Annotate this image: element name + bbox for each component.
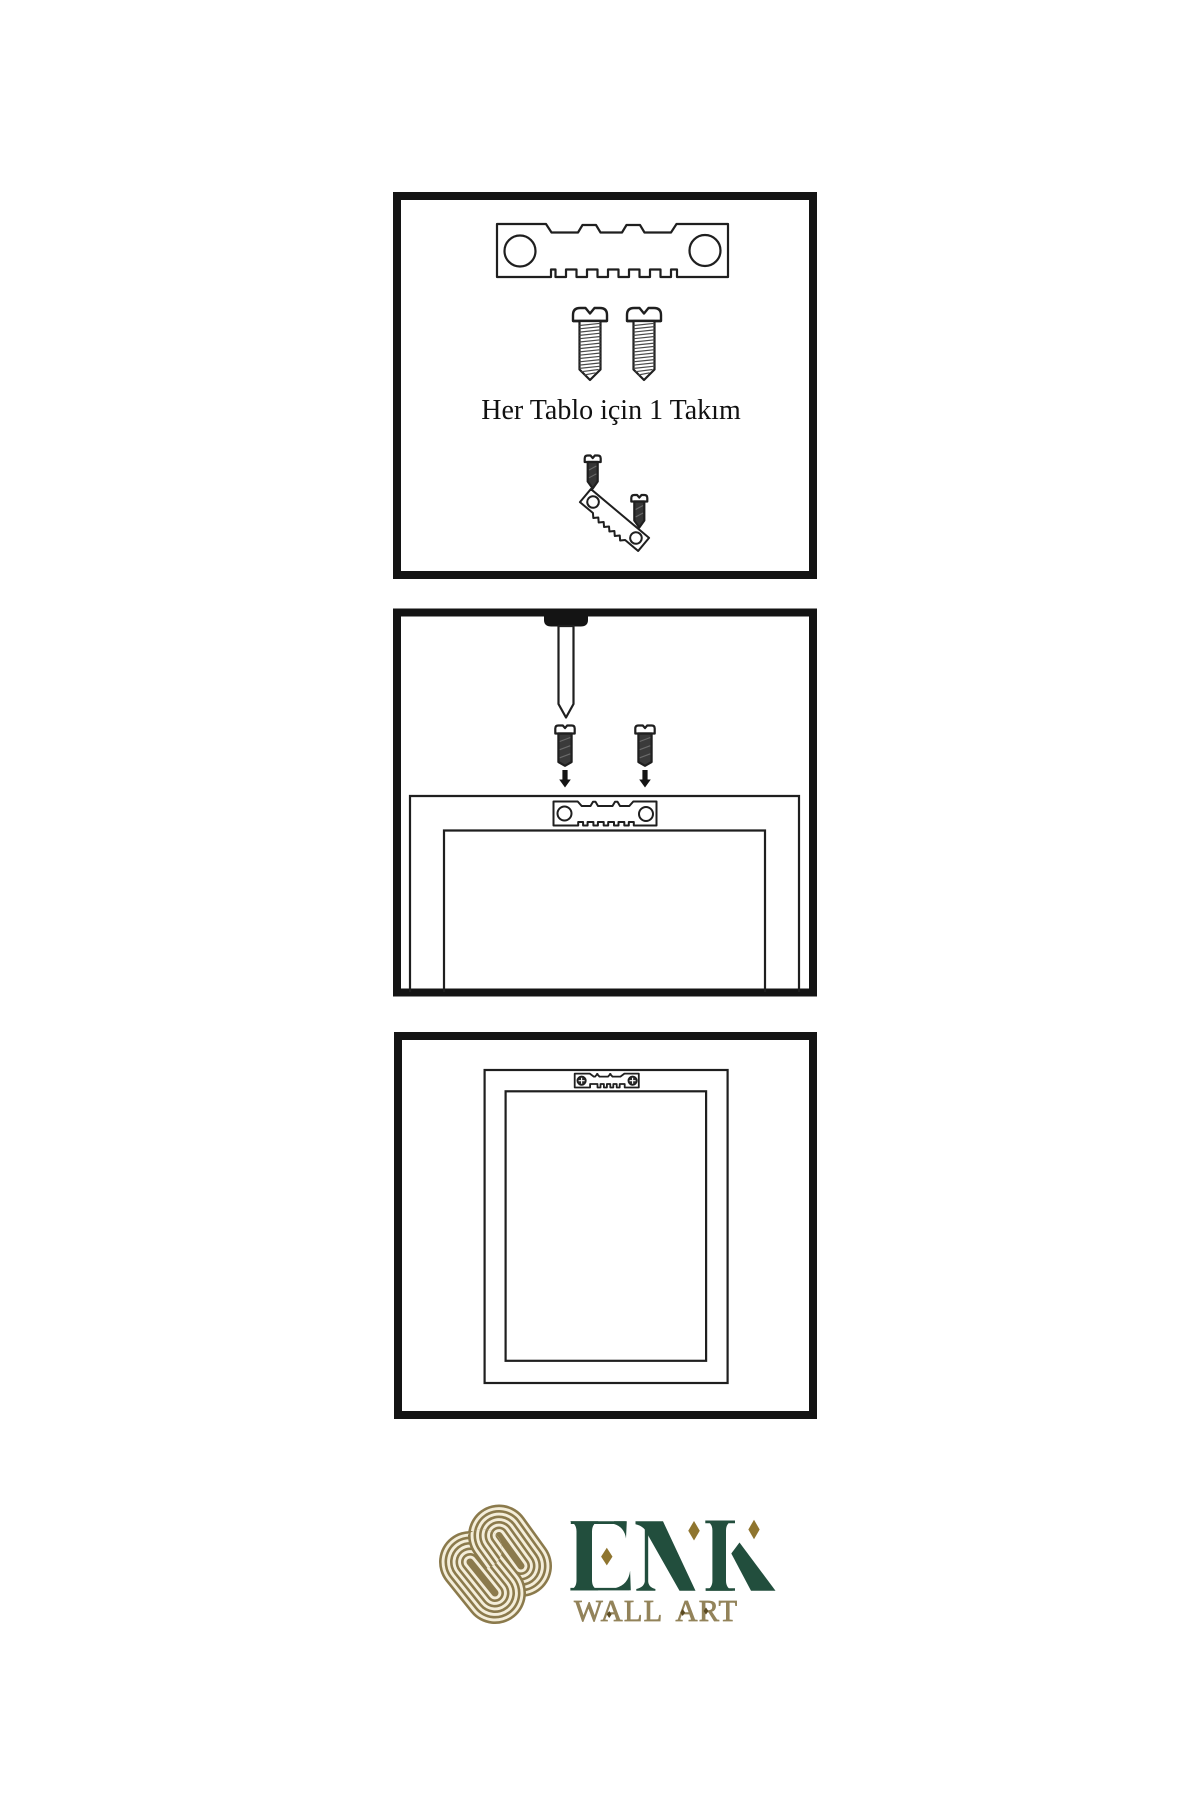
svg-text:Her Tablo için 1 Takım: Her Tablo için 1 Takım: [481, 395, 741, 426]
svg-text:WALL ART: WALL ART: [574, 1594, 738, 1628]
